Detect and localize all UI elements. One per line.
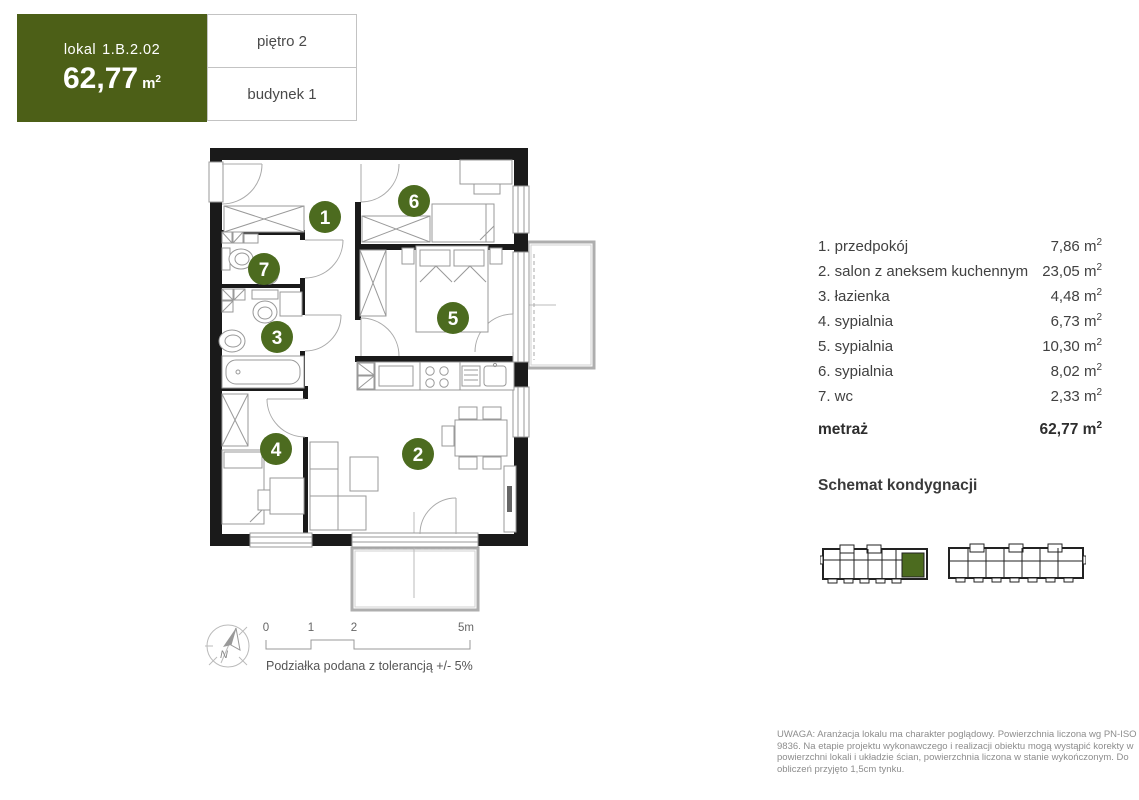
balcony-bottom <box>352 512 478 610</box>
total-area: 62,77 m2 <box>1040 420 1102 439</box>
room-area: 2,33 m2 <box>1051 387 1102 405</box>
room-area: 4,48 m2 <box>1051 287 1102 305</box>
svg-text:4: 4 <box>271 440 282 461</box>
room-row-2: 2. salon z aneksem kuchennym 23,05 m2 <box>818 262 1102 287</box>
room-row-4: 4. sypialnia 6,73 m2 <box>818 312 1102 337</box>
room-area: 6,73 m2 <box>1051 312 1102 330</box>
unit-total-area: 62,77m2 <box>63 64 161 94</box>
room-row-5: 5. sypialnia 10,30 m2 <box>818 337 1102 362</box>
living-room-furniture <box>310 407 516 532</box>
room-row-6: 6. sypialnia 8,02 m2 <box>818 362 1102 387</box>
highlighted-unit <box>902 553 924 577</box>
lokal-label: lokal <box>64 42 96 58</box>
building-schematic-highlighted <box>820 542 930 586</box>
unit-sup: 2 <box>155 74 161 85</box>
room-badge-6: 6 <box>398 185 430 217</box>
svg-text:5m: 5m <box>458 622 474 634</box>
hallway-wardrobe <box>224 206 304 232</box>
bedroom6-furniture <box>362 160 512 242</box>
room-row-1: 1. przedpokój 7,86 m2 <box>818 237 1102 262</box>
svg-text:3: 3 <box>272 328 283 349</box>
room-label: 1. przedpokój <box>818 238 908 255</box>
building-box: budynek 1 <box>207 67 357 121</box>
unit-header-card: lokal1.B.2.02 62,77m2 <box>17 14 207 122</box>
floor-schematic-title: Schemat kondygnacji <box>818 477 977 495</box>
svg-text:Podziałka podana z tolerancją: Podziałka podana z tolerancją +/- 5% <box>266 659 473 673</box>
svg-text:5: 5 <box>448 309 459 330</box>
north-compass-icon: N <box>205 625 249 667</box>
scale-bar: 0 1 2 5m Podziałka podana z tolerancją +… <box>263 622 474 673</box>
unit-base: m <box>142 75 155 92</box>
unit-meta: piętro 2 budynek 1 <box>207 14 357 122</box>
floor-box: piętro 2 <box>207 14 357 68</box>
total-area-row: metraż 62,77 m2 <box>818 420 1102 439</box>
bedroom4-furniture <box>222 394 304 524</box>
room-label: 6. sypialnia <box>818 363 893 380</box>
room-area: 8,02 m2 <box>1051 362 1102 380</box>
bedroom5-furniture <box>360 246 502 332</box>
room-label: 7. wc <box>818 388 853 405</box>
svg-text:1: 1 <box>308 622 314 634</box>
total-label: metraż <box>818 421 868 439</box>
room-badge-1: 1 <box>309 201 341 233</box>
svg-text:N: N <box>220 649 228 661</box>
apartment-card-page: lokal1.B.2.02 62,77m2 piętro 2 budynek 1 <box>0 0 1139 800</box>
svg-text:6: 6 <box>409 192 420 213</box>
room-label: 2. salon z aneksem kuchennym <box>818 263 1028 280</box>
room-label: 5. sypialnia <box>818 338 893 355</box>
room-badge-5: 5 <box>437 302 469 334</box>
unit-area-value: 62,77 <box>63 62 138 95</box>
room-area: 23,05 m2 <box>1042 262 1102 280</box>
room-row-7: 7. wc 2,33 m2 <box>818 387 1102 412</box>
room-area-list: 1. przedpokój 7,86 m2 2. salon z aneksem… <box>818 237 1102 439</box>
svg-text:2: 2 <box>413 445 424 466</box>
room-label: 3. łazienka <box>818 288 890 305</box>
unit-id: lokal1.B.2.02 <box>64 42 160 58</box>
building-schematic <box>946 540 1086 586</box>
svg-text:2: 2 <box>351 622 357 634</box>
kitchen-counter <box>357 362 514 390</box>
room-badge-4: 4 <box>260 433 292 465</box>
svg-text:7: 7 <box>259 260 270 281</box>
room-badge-7: 7 <box>248 253 280 285</box>
room-badge-3: 3 <box>261 321 293 353</box>
room-label: 4. sypialnia <box>818 313 893 330</box>
svg-text:0: 0 <box>263 622 269 634</box>
room-area: 10,30 m2 <box>1042 337 1102 355</box>
room-badge-2: 2 <box>402 438 434 470</box>
floor-plan: 1 2 3 4 5 6 7 <box>190 130 620 690</box>
room-row-3: 3. łazienka 4,48 m2 <box>818 287 1102 312</box>
room-area: 7,86 m2 <box>1051 237 1102 255</box>
legal-disclaimer: UWAGA: Aranżacja lokalu ma charakter pog… <box>777 729 1137 775</box>
svg-text:1: 1 <box>320 208 331 229</box>
lokal-number: 1.B.2.02 <box>102 42 160 58</box>
